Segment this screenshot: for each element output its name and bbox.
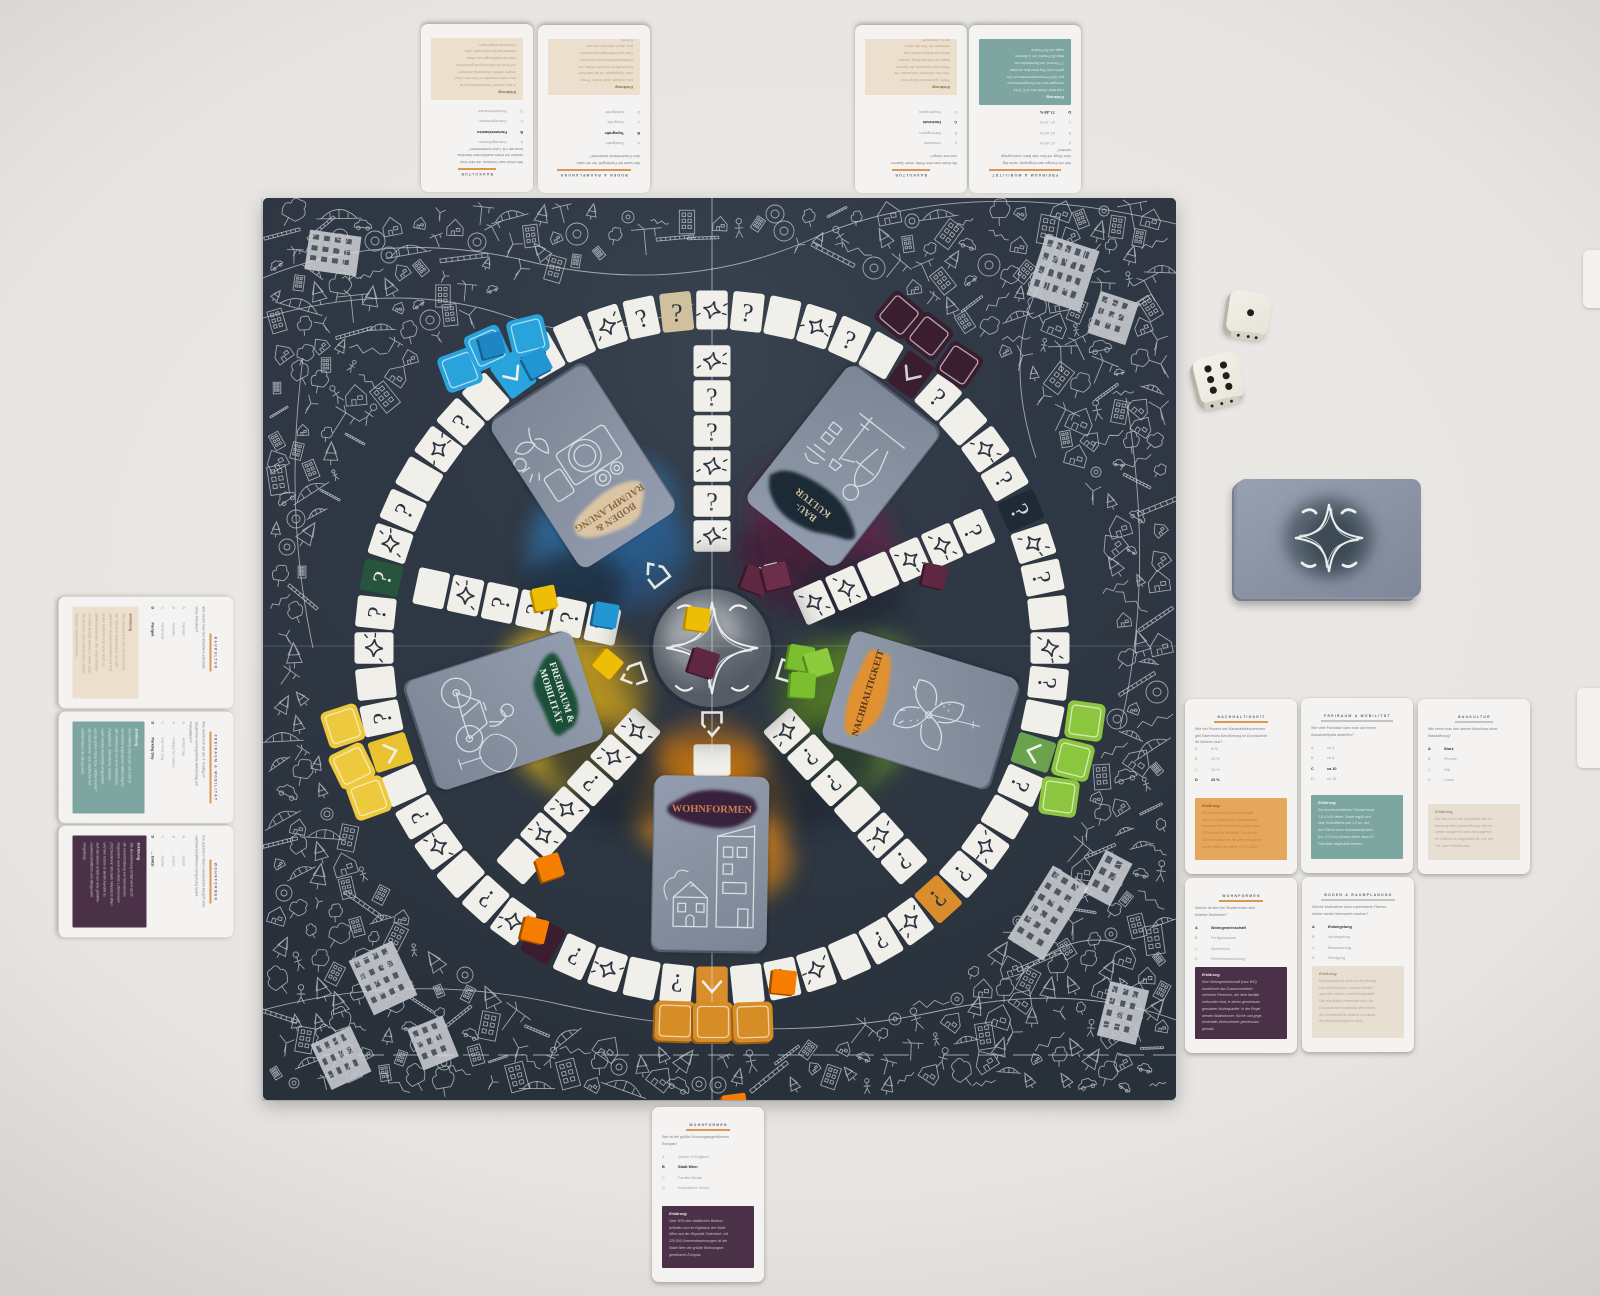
svg-text:?: ?	[1033, 677, 1062, 689]
svg-text:WOHNFORMEN: WOHNFORMEN	[672, 803, 753, 815]
svg-text:?: ?	[671, 968, 684, 997]
svg-text:?: ?	[671, 298, 683, 327]
